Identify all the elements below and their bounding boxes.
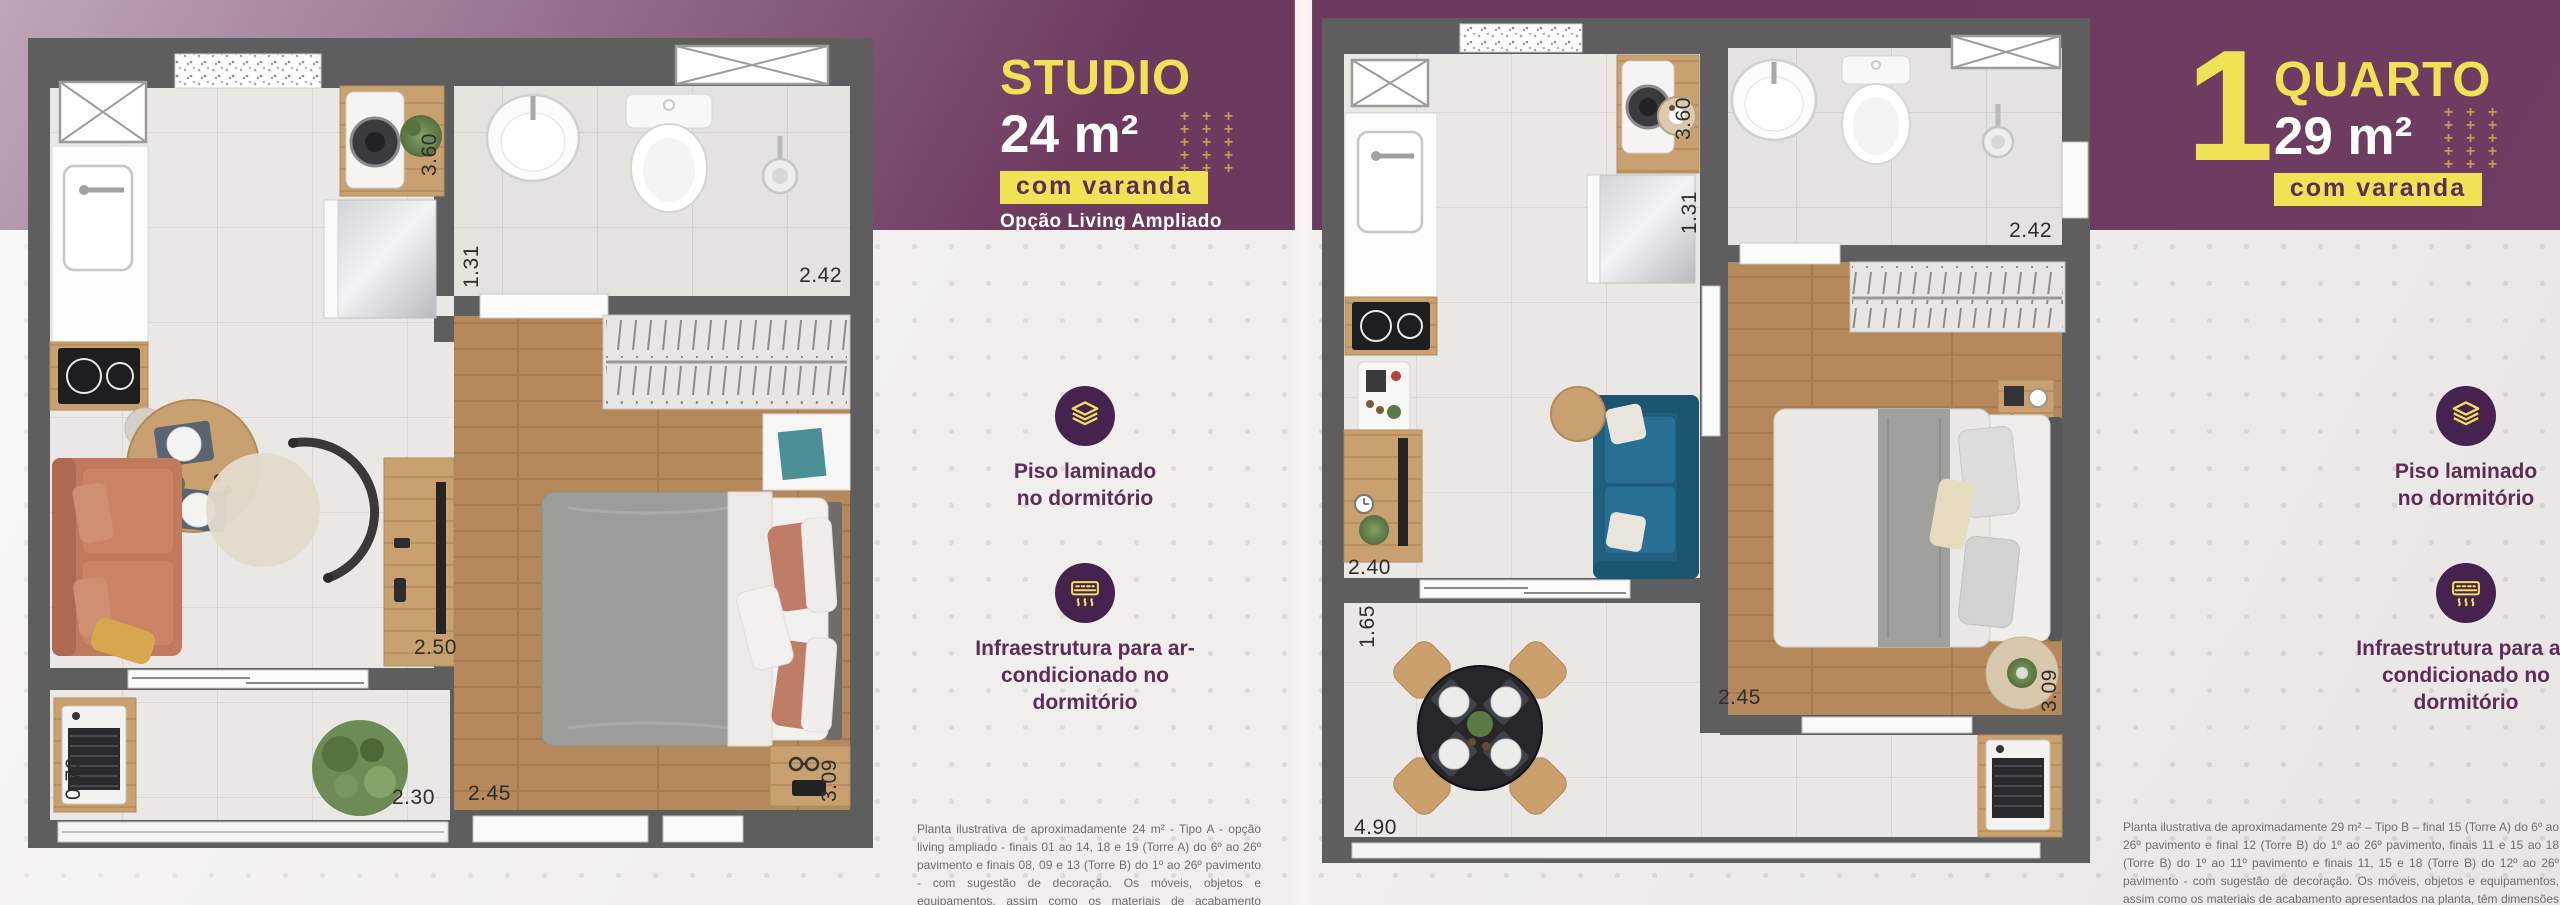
sofa-terracotta [52,458,182,667]
badge-com-varanda: com varanda [1000,171,1208,204]
toilet [1842,56,1910,164]
plan-number: 1 [2186,42,2270,172]
dim-2-45: 2.45 [1718,686,1761,709]
dim-3-60: 3.60 [1672,97,1695,140]
cooktop [1345,297,1437,355]
feature-ac: Infraestrutura para ar-condicionado no d… [2316,563,2560,717]
laminate-layers-icon [1055,386,1115,446]
double-bed [1774,409,2062,647]
disclaimer-studio: Planta ilustrativa de aproximadamente 24… [917,820,1261,905]
dim-2-42: 2.42 [2009,219,2052,242]
kitchen-counter-sink [52,146,148,344]
double-bed [542,492,842,746]
wardrobe-closet [1850,262,2065,332]
badge-com-varanda: com varanda [2274,173,2482,206]
shaft-window-kitchen [1352,60,1428,106]
entry-doormat [175,54,321,88]
kitchen-counter-sink [1345,113,1437,299]
bedroom-sliding-door [1702,286,1720,436]
feature-label: Piso laminado no dormitório [2382,458,2550,513]
brochure-canvas: 3.60 1.31 2.42 2.50 2.45 3.09 2.30 0.70 [0,0,2560,905]
side-window [2062,142,2088,218]
feature-ac: Infraestrutura para ar-condicionado no d… [935,563,1235,717]
coffee-nook [1358,362,1410,432]
feature-laminate: Piso laminado no dormitório [2316,386,2560,513]
fridge [324,200,436,318]
bathroom-sink [1732,60,1816,140]
dim-2-30: 2.30 [392,786,435,809]
shaft-window-bath [1952,36,2060,68]
feature-label: Infraestrutura para ar-condicionado no d… [2348,635,2560,717]
disclaimer-quarto: Planta ilustrativa de aproximadamente 29… [2123,818,2559,905]
dim-2-50: 2.50 [414,636,457,659]
ac-condenser [1978,735,2062,837]
air-conditioner-icon [2436,563,2496,623]
sideboard-art [763,414,850,490]
feature-label: Infraestrutura para ar-condicionado no d… [967,635,1203,717]
plan-option: Opção Living Ampliado [1000,211,1222,233]
tv-console [384,458,454,666]
sofa-teal [1593,395,1699,579]
dim-2-45: 2.45 [468,782,511,805]
panel-divider [1293,0,1313,905]
feature-label: Piso laminado no dormitório [1001,458,1169,513]
features-quarto: Piso laminado no dormitório Infraestrutu… [2316,386,2560,766]
bathroom-door-opening [480,294,608,318]
plus-pattern: +++++++++++++++ [1178,110,1235,175]
plan-title: STUDIO [1000,54,1222,103]
bedroom-window-2 [663,816,743,842]
dim-2-40: 2.40 [1348,556,1391,579]
cooktop [50,342,148,410]
toilet [626,94,712,212]
balcony-railing [1352,843,2040,858]
entry-doormat [1460,24,1582,52]
shaft-window-bath [676,46,828,84]
plus-pattern: +++++++++++++++ [2442,106,2499,171]
wardrobe-closet [603,315,850,409]
laminate-layers-icon [2436,386,2496,446]
features-studio: Piso laminado no dormitório Infraestrutu… [935,386,1235,766]
dim-0-70: 0.70 [62,757,85,800]
desk-tv [1344,430,1422,562]
dim-1-31: 1.31 [460,245,483,288]
shaft-window-kitchen [60,82,146,142]
bathroom-sink [487,95,579,181]
dim-3-09: 3.09 [2038,669,2061,712]
feature-laminate: Piso laminado no dormitório [935,386,1235,513]
coffee-table [1551,387,1605,441]
dim-4-90: 4.90 [1354,816,1397,839]
bedroom-window [473,816,648,842]
floorplan-1quarto: 3.60 1.31 2.42 2.40 1.65 4.90 2.45 3.09 [1322,18,2090,863]
plan-title: QUARTO [2274,56,2491,105]
floorplan-studio: 3.60 1.31 2.42 2.50 2.45 3.09 2.30 0.70 [28,38,873,848]
dim-3-09: 3.09 [818,759,841,802]
dim-3-60: 3.60 [418,133,441,176]
bathroom-door-opening [1740,243,1840,264]
air-conditioner-icon [1055,563,1115,623]
dim-2-42: 2.42 [799,264,842,287]
dim-1-65: 1.65 [1356,605,1379,648]
dim-1-31: 1.31 [1678,191,1701,234]
bedroom-window [1802,717,1972,733]
wall-stub [434,316,454,342]
